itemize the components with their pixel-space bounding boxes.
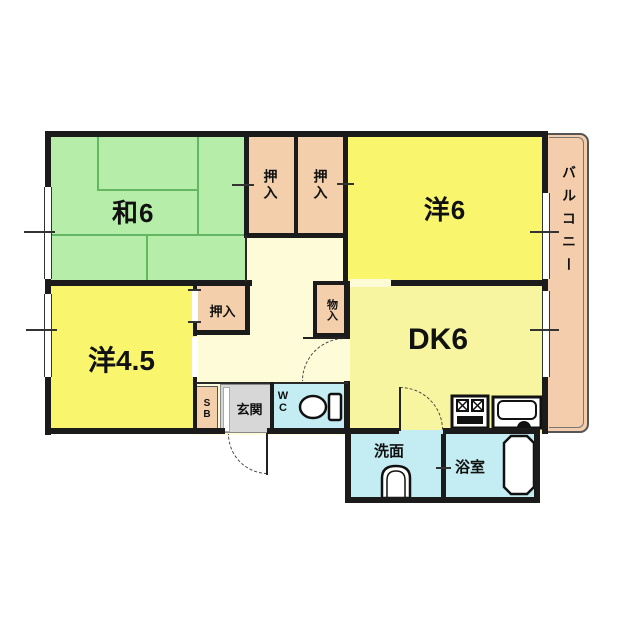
door-opening [192,337,198,377]
toilet-icon [297,391,345,423]
wall [542,131,548,193]
bathroom-label: 浴室 [455,456,485,477]
tick-mark [26,329,57,331]
tick-mark [24,231,55,233]
wall [343,131,348,283]
closet-label: 押入 [311,169,331,201]
balcony-label: バルコニー [559,165,579,280]
entrance-genkan: 玄関 [220,384,273,433]
tatami-line [97,189,199,191]
shoebox-label: SB [202,398,213,420]
balcony: バルコニー [545,133,589,433]
bathtub-icon [501,434,537,496]
washroom-senmen: 洗面 [348,430,443,500]
tick-mark [188,289,201,291]
storage-label: 物入 [324,299,340,321]
room-yoshitsu-45-label: 洋4.5 [88,339,155,379]
wall [195,330,250,335]
room-yoshitsu-6: 洋6 [345,133,545,283]
tick-mark [232,184,254,186]
tatami-line [97,133,99,191]
room-washitsu-6-label: 和6 [112,193,154,230]
tatami-line [197,133,199,235]
wall [193,322,197,336]
wall [313,281,317,337]
washroom-door-leaf [399,387,401,431]
window [44,187,52,279]
wall [193,377,197,433]
wall [244,233,348,238]
room-dk-6-label: DK6 [408,323,468,357]
entrance-door-arc [228,434,268,474]
wall [542,377,548,434]
wall [443,428,540,434]
washbasin-icon [374,462,418,500]
bathroom-yokushitsu: 浴室 [443,430,538,500]
shoebox-sb: SB [196,386,218,431]
tick-mark [436,467,451,469]
wall [441,434,446,497]
entrance-label: 玄関 [236,399,262,418]
room-yoshitsu-45: 洋4.5 [48,285,195,433]
window [542,193,550,279]
wall [344,381,350,434]
wall [294,133,298,235]
wall [245,285,250,335]
wall [345,497,540,503]
closet-oshiire-top-right: 押入 [298,135,343,235]
wall [345,430,351,503]
wall [344,281,350,339]
wc-label: WC [277,390,289,414]
washroom-label: 洗面 [374,440,404,461]
tick-mark [530,329,559,331]
room-yoshitsu-6-label: 洋6 [424,190,466,227]
stove-icon [450,394,490,430]
tatami-line [146,235,148,285]
wall [45,428,225,434]
tick-mark [530,231,559,233]
entrance-door-leaf [266,433,268,475]
wall [45,377,51,435]
window [542,291,550,377]
door-opening [350,279,391,287]
wall [267,428,399,434]
wall [391,280,545,286]
wall [45,131,51,187]
closet-oshiire-45: 押入 [195,285,250,335]
toilet-wc: WC [273,384,348,430]
closet-label: 押入 [209,301,235,320]
closet-label: 押入 [261,169,281,201]
entrance-step [223,387,230,432]
sliding-door-line [245,235,247,282]
wall [45,280,252,286]
tick-mark [188,321,201,323]
door-opening [192,290,198,322]
floor-plan: バルコニー 和6 押入 押入 洋6 洋4.5 押入 物入 DK6 玄関 SB W… [0,0,640,640]
closet-oshiire-top-left: 押入 [247,135,294,235]
wall [270,382,274,433]
wall [534,430,540,503]
tick-mark [337,183,354,185]
window [44,294,52,377]
kitchen-sink-icon [491,395,543,430]
dk-door-leaf [303,337,345,339]
